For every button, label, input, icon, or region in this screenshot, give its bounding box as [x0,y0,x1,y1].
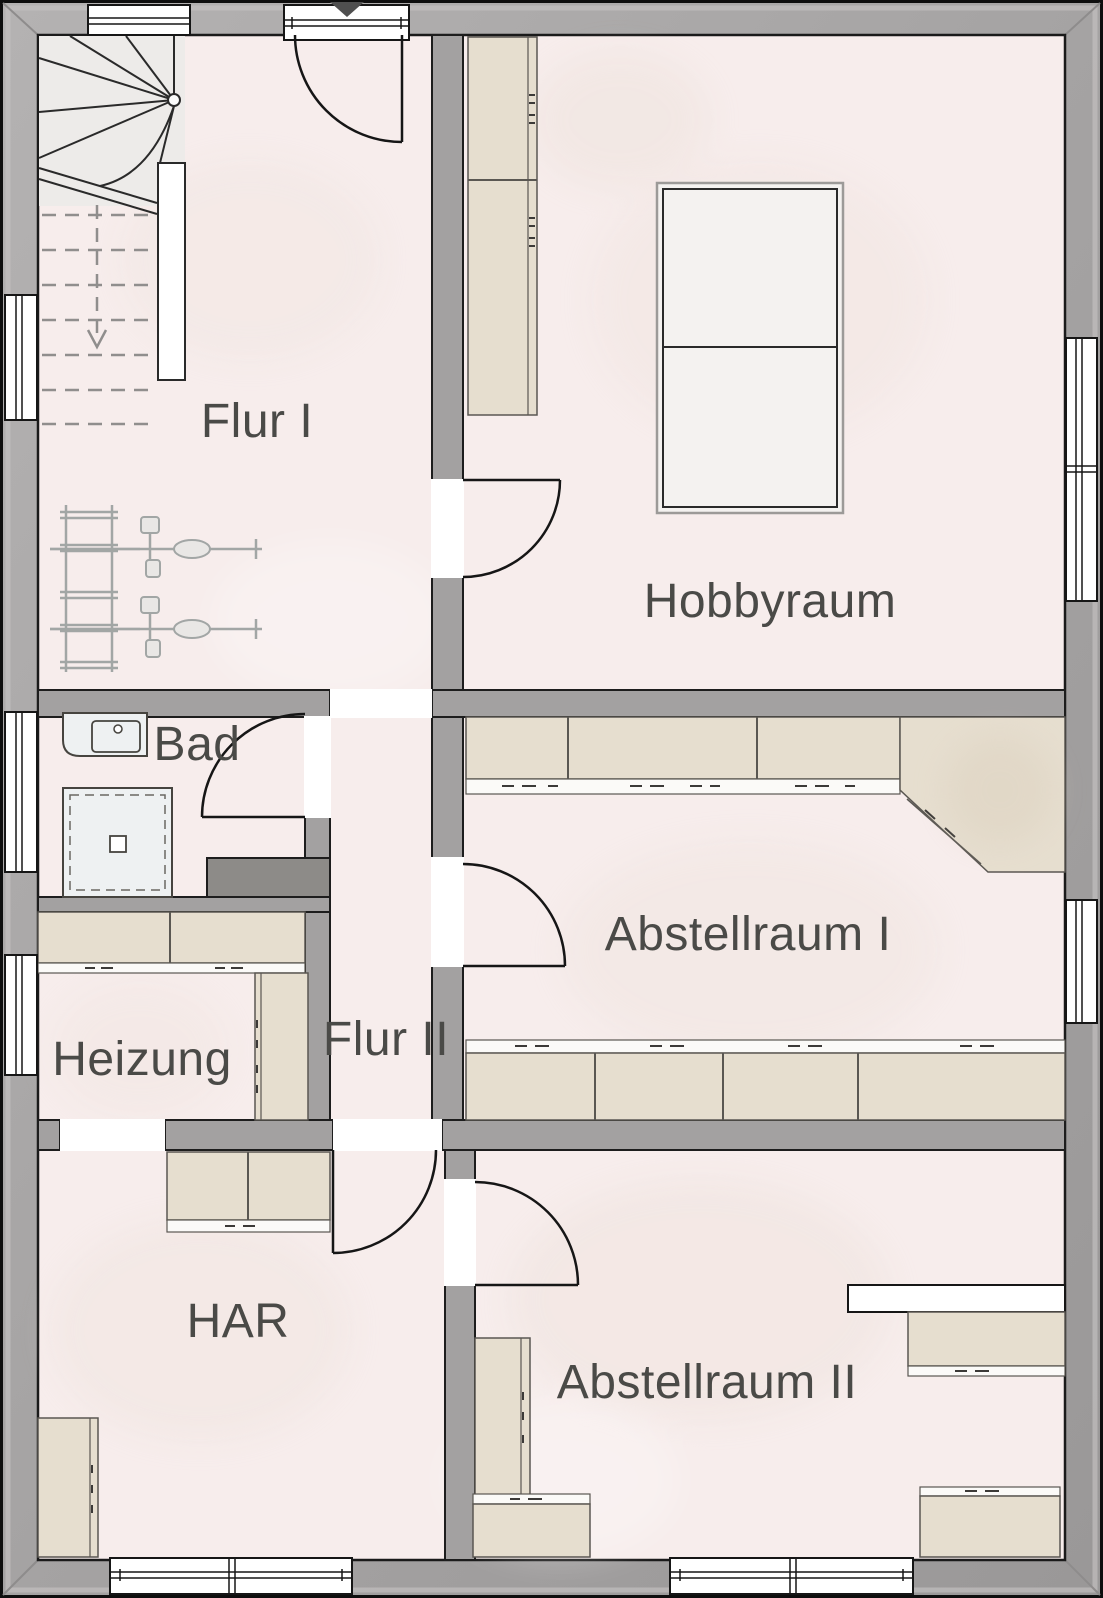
room-label-abstellraum-1: Abstellraum I [605,908,892,961]
cabinet [920,1487,1060,1557]
window [5,295,37,420]
duct-block [207,858,330,897]
window [110,1558,352,1594]
window [5,955,37,1075]
room-label-heizung: Heizung [52,1033,232,1086]
passage-opening [330,689,432,718]
window [88,5,190,35]
room-label-abstellraum-2: Abstellraum II [557,1356,857,1409]
wall-segment [442,1120,1065,1150]
shower-icon [63,788,172,897]
room-label-bad: Bad [154,718,241,771]
window [670,1558,913,1594]
cabinet [466,1040,1065,1120]
stair-handrail [158,163,185,380]
window [5,712,37,872]
floor-plan: Flur I Hobbyraum Bad Abstellraum I Heizu… [0,0,1103,1598]
shower-drain [110,836,126,852]
room-label-har: HAR [187,1295,290,1348]
wall-segment [432,35,463,480]
cabinet [255,973,308,1120]
door-opening [304,716,331,818]
table [657,183,843,513]
wall-segment [38,1120,60,1150]
door-opening [444,1179,476,1286]
wall-segment [432,690,1065,717]
floor-plan-page: Flur I Hobbyraum Bad Abstellraum I Heizu… [0,0,1103,1598]
cabinet [468,37,537,415]
window [1066,338,1097,601]
cabinet [38,1418,98,1557]
cabinet [473,1494,590,1557]
cabinet [475,1338,530,1500]
passage-opening [60,1119,165,1151]
stair-newel-post [168,94,180,106]
door-opening [431,479,464,578]
wall-segment [38,897,330,912]
door-opening [431,857,464,967]
cabinet [38,912,305,973]
cabinet [167,1152,330,1232]
wall-segment [432,717,463,858]
wall-segment [165,1120,333,1150]
window [1066,900,1097,1023]
washbasin-icon [63,713,147,756]
wall-segment [445,1150,475,1180]
wall-segment [445,1285,475,1560]
room-label-flur-2: Flur II [323,1013,449,1066]
door-opening [333,1119,442,1151]
cabinet [908,1312,1065,1376]
room-label-hobbyraum: Hobbyraum [644,575,897,628]
room-label-flur-1: Flur I [201,395,313,448]
wall-niche [848,1285,1065,1312]
